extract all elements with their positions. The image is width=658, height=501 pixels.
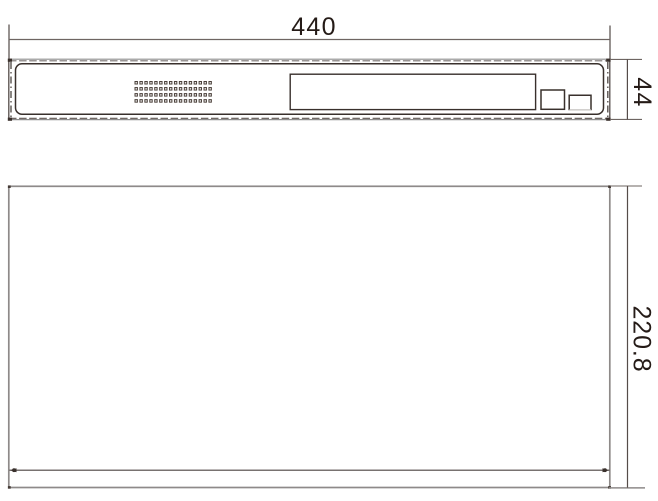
svg-text:44: 44 <box>628 77 656 107</box>
svg-text:440: 440 <box>291 13 337 41</box>
svg-text:220.8: 220.8 <box>628 305 656 372</box>
